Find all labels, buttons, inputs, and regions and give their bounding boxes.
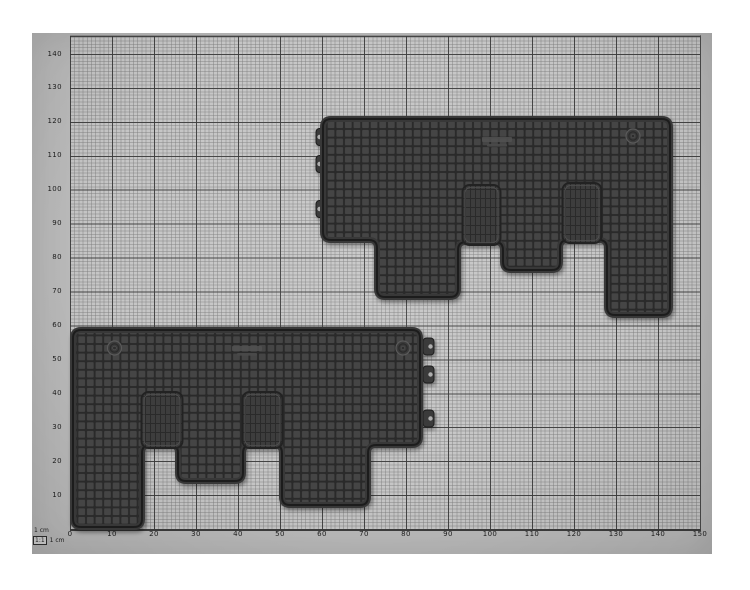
y-axis-tick-label: 40 — [52, 389, 62, 397]
y-axis-tick-label: 110 — [47, 151, 62, 159]
x-axis-tick-label: 130 — [609, 530, 624, 538]
y-axis-tick-label: 100 — [47, 185, 62, 193]
x-axis-tick-label: 90 — [443, 530, 453, 538]
y-axis-tick-label: 20 — [52, 457, 62, 465]
y-axis-tick-label: 80 — [52, 253, 62, 261]
x-axis-tick-label: 20 — [149, 530, 159, 538]
scale-legend: 1 cm 1:1 1 cm — [33, 527, 65, 545]
x-axis-tick-label: 70 — [359, 530, 369, 538]
y-axis-tick-label: 90 — [52, 219, 62, 227]
x-axis-tick-label: 0 — [68, 530, 73, 538]
x-axis-tick-label: 150 — [693, 530, 708, 538]
scale-ratio-badge: 1:1 — [33, 536, 47, 545]
y-axis-tick-label: 70 — [52, 287, 62, 295]
x-axis-labels: 0102030405060708090100110120130140150 — [32, 530, 712, 542]
x-axis-tick-label: 110 — [525, 530, 540, 538]
screenshot-canvas: 140130120110100908070605040302010 010203… — [0, 0, 750, 590]
x-axis-tick-label: 40 — [233, 530, 243, 538]
x-axis-tick-label: 80 — [401, 530, 411, 538]
x-axis-tick-label: 100 — [483, 530, 498, 538]
measurement-photo: 140130120110100908070605040302010 010203… — [32, 33, 712, 554]
x-axis-tick-label: 50 — [275, 530, 285, 538]
y-axis-tick-label: 30 — [52, 423, 62, 431]
y-axis-tick-label: 140 — [47, 50, 62, 58]
scale-unit: 1 cm — [50, 537, 65, 544]
x-axis-tick-label: 140 — [651, 530, 666, 538]
y-axis-labels: 140130120110100908070605040302010 — [32, 33, 66, 554]
x-axis-tick-label: 10 — [107, 530, 117, 538]
y-axis-tick-label: 60 — [52, 321, 62, 329]
graph-paper-grid — [70, 35, 701, 531]
y-axis-tick-label: 120 — [47, 117, 62, 125]
x-axis-tick-label: 120 — [567, 530, 582, 538]
scale-note: 1 cm — [34, 527, 65, 534]
y-axis-tick-label: 130 — [47, 83, 62, 91]
y-axis-tick-label: 10 — [52, 491, 62, 499]
x-axis-tick-label: 60 — [317, 530, 327, 538]
x-axis-tick-label: 30 — [191, 530, 201, 538]
y-axis-tick-label: 50 — [52, 355, 62, 363]
